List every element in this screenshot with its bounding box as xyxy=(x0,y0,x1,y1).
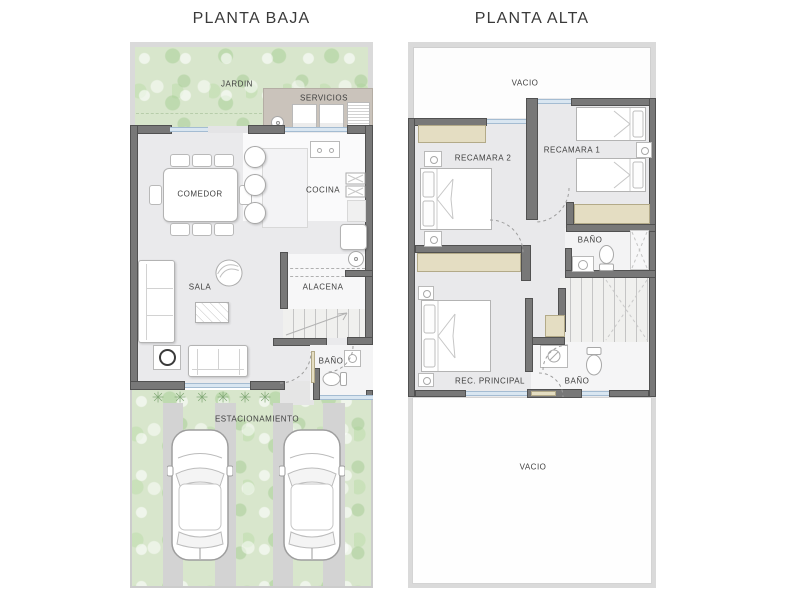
sink-basin xyxy=(348,354,357,363)
dining-chair xyxy=(214,223,234,236)
lamp-icon xyxy=(641,147,649,155)
side-table xyxy=(153,345,181,370)
toilet xyxy=(585,346,603,377)
wall-segment xyxy=(525,298,533,372)
refrigerator xyxy=(340,224,367,250)
entry-door-leaf xyxy=(311,351,315,383)
window xyxy=(487,119,526,124)
stair-direction-arrow xyxy=(283,309,367,338)
drain-icon xyxy=(541,346,567,367)
door-leaf xyxy=(531,391,556,396)
window xyxy=(466,391,527,396)
closet xyxy=(574,204,650,224)
garden-label: JARDIN xyxy=(221,80,253,89)
shower-dashes xyxy=(631,231,648,269)
sofa-cushion-line xyxy=(147,288,173,289)
wall-segment xyxy=(408,118,415,397)
sink-basin xyxy=(578,260,588,270)
window xyxy=(533,99,571,104)
bar-stool xyxy=(244,202,266,224)
single-bed xyxy=(576,158,646,192)
shower-tray xyxy=(540,345,568,368)
double-bed xyxy=(420,168,492,230)
void-bottom-label: VACIO xyxy=(520,463,547,472)
shower xyxy=(630,230,649,270)
bedroom1-label: RECAMARA 1 xyxy=(544,146,601,155)
lamp-icon xyxy=(423,377,431,385)
loveseat-armrest-line xyxy=(197,349,198,375)
window xyxy=(320,395,373,400)
wall-segment xyxy=(532,337,565,345)
dining-chair xyxy=(192,154,212,167)
plant-icon: ✳ xyxy=(239,391,252,406)
kitchen-sink xyxy=(310,141,340,158)
lamp-icon xyxy=(430,236,438,244)
bath-bottom-label: BAÑO xyxy=(565,377,590,386)
kitchen-counter xyxy=(347,200,366,222)
coffee-table xyxy=(195,302,229,323)
plant-icon: ✳ xyxy=(196,391,209,406)
sink-drain xyxy=(317,148,322,153)
nightstand xyxy=(424,151,442,167)
planta-baja-title: PLANTA BAJA xyxy=(130,10,373,28)
closet xyxy=(417,253,521,272)
dining-chair xyxy=(170,223,190,236)
wall-segment xyxy=(250,381,285,390)
parking-area: ✳ ✳ ✳ ✳ ✳ ✳ ESTACIONAMIENTO xyxy=(130,390,373,588)
lamp-icon xyxy=(423,290,431,298)
dining-chair xyxy=(170,154,190,167)
closet xyxy=(545,315,565,337)
water-heater-icon xyxy=(348,251,364,267)
living-label: SALA xyxy=(189,283,211,292)
plant-icon: ✳ xyxy=(174,391,187,406)
window xyxy=(285,127,347,132)
kitchen-label: COCINA xyxy=(306,186,340,195)
plant-icon: ✳ xyxy=(217,391,230,406)
plant-icon: ✳ xyxy=(152,391,165,406)
nightstand xyxy=(418,286,434,300)
pantry-shelf-dashes xyxy=(285,268,365,269)
wall-segment xyxy=(521,245,531,281)
parking-label: ESTACIONAMIENTO xyxy=(215,415,299,424)
dining-chair xyxy=(192,223,212,236)
single-bed xyxy=(576,107,646,141)
water-heater-dot xyxy=(354,257,358,261)
dining-chair xyxy=(149,185,162,205)
garden-dashed-line xyxy=(136,113,262,114)
wall-segment xyxy=(280,252,288,309)
plant-icon: ✳ xyxy=(259,391,272,406)
bathroom-sink xyxy=(344,350,361,367)
pantry-label: ALACENA xyxy=(303,283,344,292)
wall-segment xyxy=(248,125,285,134)
sofa-back-line xyxy=(146,264,147,340)
washer xyxy=(292,104,317,129)
master-bedroom-label: REC. PRINCIPAL xyxy=(455,377,525,386)
loveseat-cushion-line xyxy=(218,349,219,369)
loveseat-back-line xyxy=(192,369,244,370)
planta-alta-plan: VACIO RECAMARA 2 RECAMARA 1 BAÑO REC. PR… xyxy=(408,42,656,588)
bedroom2-label: RECAMARA 2 xyxy=(455,154,512,163)
window xyxy=(185,383,250,388)
planta-baja-plan: ✳ ✳ ✳ ✳ ✳ ✳ ESTACIONAMIENTO xyxy=(130,42,373,588)
toilet xyxy=(322,371,348,387)
garden-opening xyxy=(208,126,248,133)
wall-segment xyxy=(609,390,649,397)
toilet xyxy=(598,244,615,272)
bathroom-sink xyxy=(572,256,594,272)
stair-cross-dashes xyxy=(560,278,649,342)
wall-segment xyxy=(571,98,656,106)
car xyxy=(279,428,345,562)
nightstand xyxy=(636,142,652,158)
closet xyxy=(418,125,486,143)
dryer xyxy=(319,104,344,129)
car xyxy=(167,428,233,562)
bath-label: BAÑO xyxy=(319,357,344,366)
sofa-cushion-line xyxy=(147,315,173,316)
kitchen-island xyxy=(262,148,308,228)
staircase xyxy=(283,309,367,338)
bar-stool xyxy=(244,174,266,196)
nightstand xyxy=(418,373,434,387)
bath-top-label: BAÑO xyxy=(578,236,603,245)
void-bottom xyxy=(408,397,656,588)
double-bed xyxy=(421,300,491,372)
loveseat xyxy=(188,345,248,377)
wall-segment xyxy=(130,125,138,390)
wall-segment xyxy=(415,390,466,397)
wall-segment xyxy=(130,381,185,390)
window xyxy=(582,391,609,396)
dining-chair xyxy=(214,154,234,167)
wall-segment xyxy=(526,98,538,220)
potted-plant-icon xyxy=(159,349,176,366)
bar-stool xyxy=(244,146,266,168)
floorplan-page: PLANTA BAJA ✳ ✳ ✳ ✳ ✳ ✳ ESTACIONAMIENTO xyxy=(0,0,800,600)
sink-drain xyxy=(329,148,334,153)
dining-label: COMEDOR xyxy=(177,190,222,199)
void-top-label: VACIO xyxy=(512,79,539,88)
planta-alta-title: PLANTA ALTA xyxy=(408,10,656,28)
window xyxy=(170,127,208,132)
stove xyxy=(345,172,366,198)
nightstand xyxy=(424,231,442,247)
staircase xyxy=(560,278,649,342)
sofa xyxy=(138,260,175,343)
service-label: SERVICIOS xyxy=(300,94,348,103)
lamp-icon xyxy=(430,156,438,164)
loveseat-armrest-line xyxy=(239,349,240,375)
wall-segment xyxy=(345,270,373,277)
wall-segment xyxy=(347,337,373,345)
